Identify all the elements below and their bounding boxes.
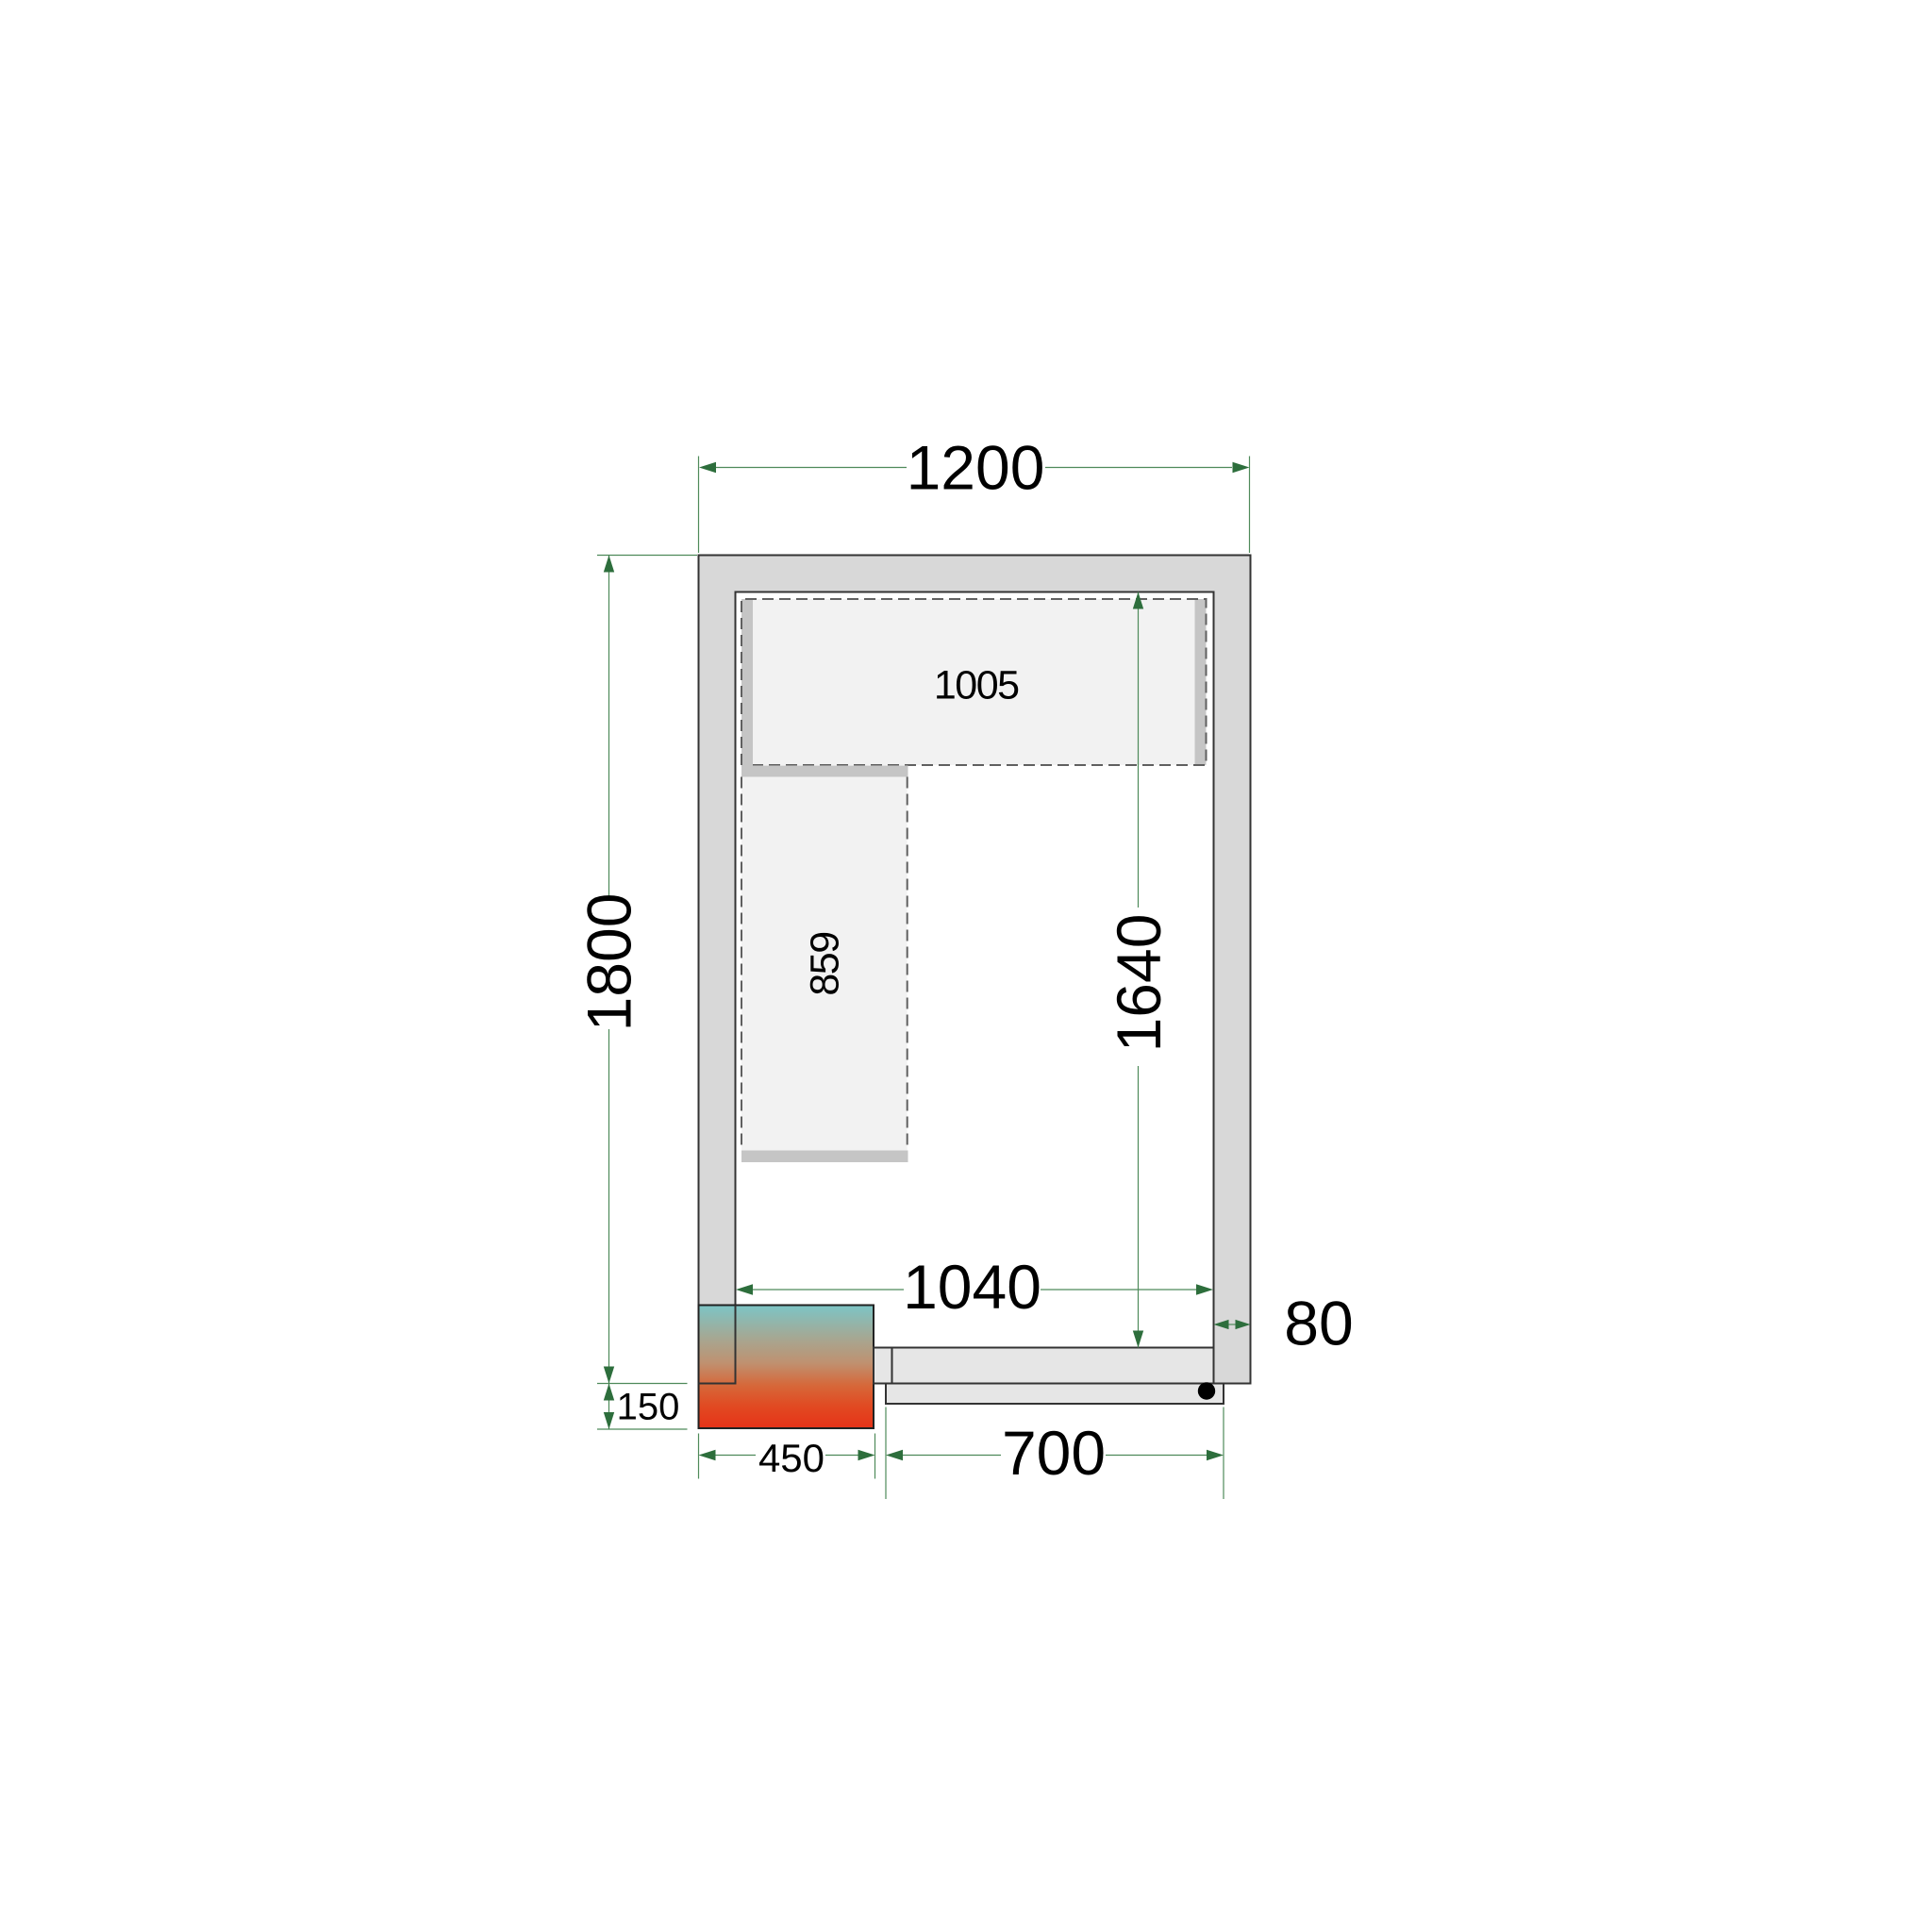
svg-text:1640: 1640 [1104, 914, 1174, 1053]
svg-text:700: 700 [1002, 1418, 1106, 1488]
svg-text:859: 859 [803, 932, 848, 995]
svg-text:1800: 1800 [575, 893, 644, 1032]
svg-text:1005: 1005 [934, 663, 1019, 708]
svg-text:1200: 1200 [907, 433, 1045, 503]
svg-text:450: 450 [758, 1436, 824, 1480]
svg-text:1040: 1040 [903, 1252, 1041, 1322]
svg-text:80: 80 [1284, 1289, 1353, 1358]
svg-text:150: 150 [617, 1387, 680, 1428]
